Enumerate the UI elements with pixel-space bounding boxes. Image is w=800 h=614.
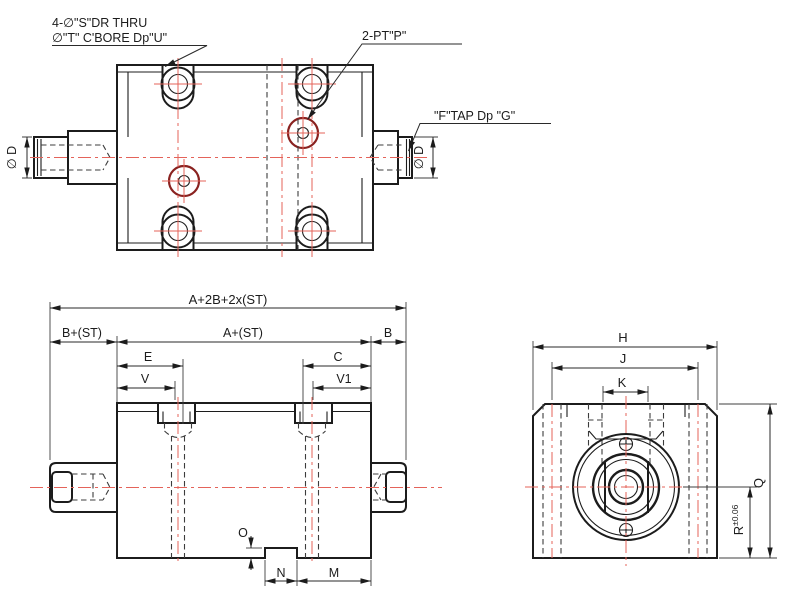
dim-row2: B+(ST) A+(ST) B [50,326,406,402]
drill-note-line1: 4-∅"S"DR THRU [52,16,147,30]
dim-n-m: N M [265,560,371,586]
dim-v1-label: V1 [336,372,351,386]
tap-note-label: "F"TAP Dp "G" [434,109,515,123]
dim-v-label: V [141,372,150,386]
dim-r: R±0.06 [683,487,757,558]
dia-dim-right: ∅ D [412,137,438,178]
dim-q: Q [719,404,777,558]
dim-m-label: M [329,566,339,580]
dim-q-label: Q [751,478,766,488]
dim-e-label: E [144,350,152,364]
dim-o-label: O [238,526,248,540]
tap-note: "F"TAP Dp "G" [409,109,552,151]
dim-n-label: N [276,566,285,580]
drill-note: 4-∅"S"DR THRU ∅"T" C'BORE Dp"U" [52,16,207,67]
dim-k-label: K [618,375,627,390]
dia-dim-left: ∅ D [5,137,32,178]
top-view: ∅ D ∅ D 4-∅"S"DR THRU ∅"T" C'BORE Dp"U" … [5,16,551,257]
dim-v-v1: V V1 [117,372,371,400]
dia-dim-right-label: ∅ D [412,146,426,169]
dim-body-label: A+(ST) [223,326,263,340]
dim-total: A+2B+2x(ST) [50,292,406,460]
front-view: A+2B+2x(ST) B+(ST) A+(ST) B E C V V1 [30,292,442,586]
drawing-page: ∅ D ∅ D 4-∅"S"DR THRU ∅"T" C'BORE Dp"U" … [0,0,800,614]
dim-o: O [238,526,262,570]
dia-dim-left-label: ∅ D [5,146,19,169]
dim-right-end-label: B [384,326,392,340]
dim-j-label: J [620,351,627,366]
dim-r-label: R±0.06 [730,504,746,535]
side-view: H J K Q R±0.06 [525,330,777,566]
dim-h-label: H [618,330,627,345]
dim-left-end-label: B+(ST) [62,326,102,340]
drill-note-line2: ∅"T" C'BORE Dp"U" [52,31,167,45]
port-note-label: 2-PT"P" [362,29,406,43]
dim-h: H [533,330,717,410]
dim-c-label: C [333,350,342,364]
engineering-drawing: ∅ D ∅ D 4-∅"S"DR THRU ∅"T" C'BORE Dp"U" … [0,0,800,614]
port-note: 2-PT"P" [308,29,463,120]
dim-total-label: A+2B+2x(ST) [189,292,268,307]
